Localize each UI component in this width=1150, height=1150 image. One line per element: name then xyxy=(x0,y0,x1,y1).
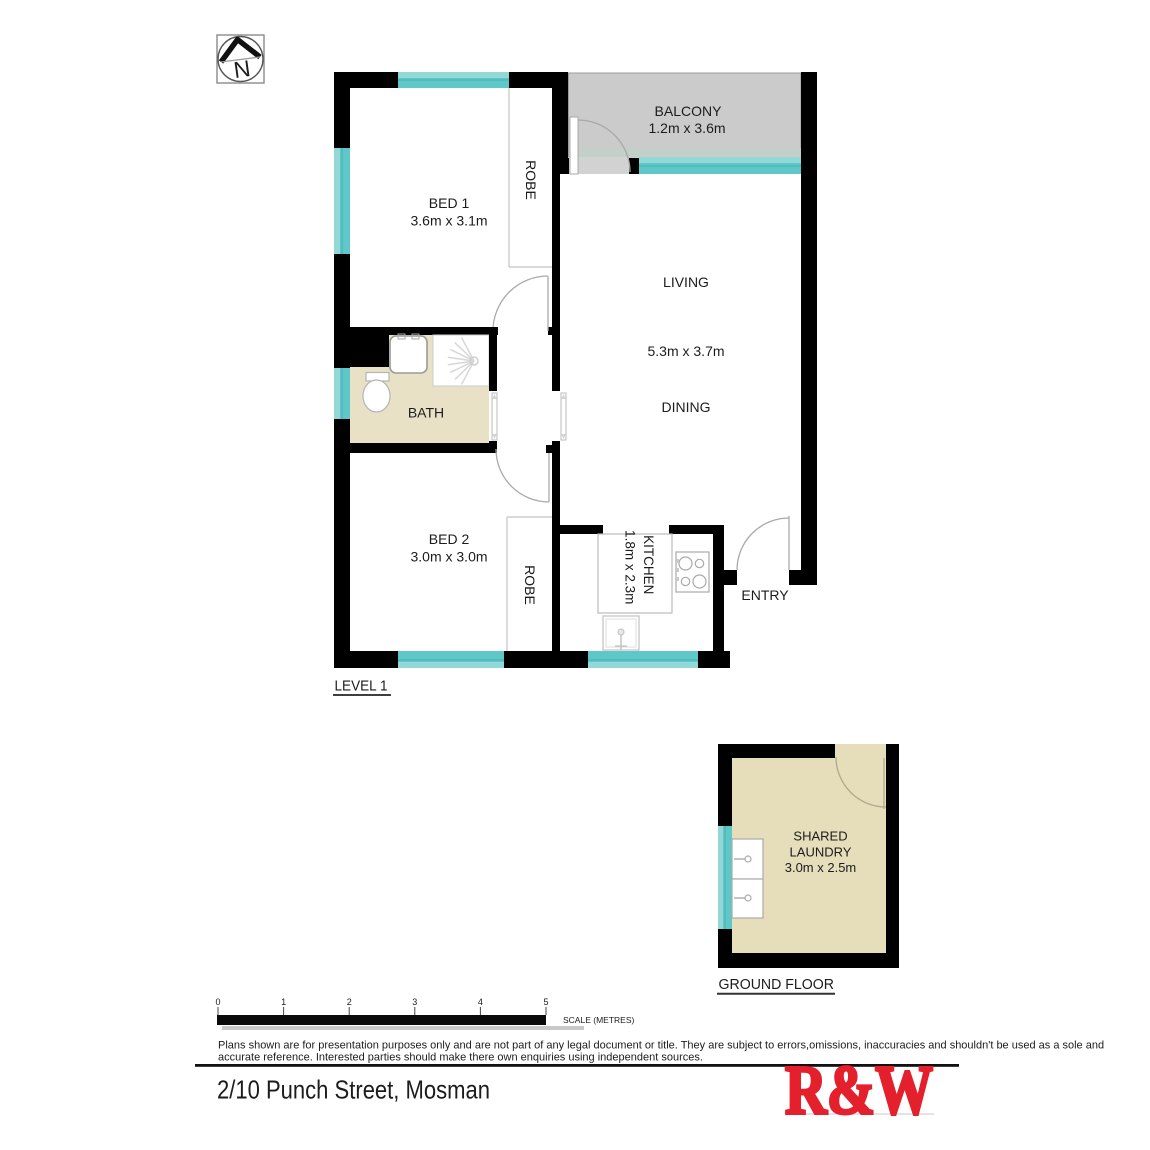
svg-text:BATH: BATH xyxy=(408,405,444,421)
svg-text:BALCONY: BALCONY xyxy=(655,103,723,119)
svg-text:SCALE (METRES): SCALE (METRES) xyxy=(563,1015,634,1025)
svg-text:1: 1 xyxy=(281,997,286,1007)
svg-text:DINING: DINING xyxy=(662,399,711,415)
svg-text:3.0m x 3.0m: 3.0m x 3.0m xyxy=(410,549,487,565)
svg-text:5.3m x 3.7m: 5.3m x 3.7m xyxy=(647,343,724,359)
svg-text:1.2m x 3.6m: 1.2m x 3.6m xyxy=(648,120,725,136)
svg-text:ENTRY: ENTRY xyxy=(741,587,789,603)
svg-text:ROBE: ROBE xyxy=(522,565,538,605)
svg-text:LAUNDRY: LAUNDRY xyxy=(790,844,852,859)
svg-text:N: N xyxy=(232,55,252,83)
svg-text:Plans shown are for presentati: Plans shown are for presentation purpose… xyxy=(218,1040,1104,1052)
svg-text:4: 4 xyxy=(478,997,483,1007)
svg-text:LIVING: LIVING xyxy=(663,274,709,290)
svg-text:R&W: R&W xyxy=(785,1053,933,1130)
svg-text:3: 3 xyxy=(412,997,417,1007)
svg-text:2/10 Punch Street, Mosman: 2/10 Punch Street, Mosman xyxy=(217,1074,490,1104)
svg-text:0: 0 xyxy=(215,997,220,1007)
svg-text:BED 1: BED 1 xyxy=(429,195,470,211)
svg-text:accurate reference. Interested: accurate reference. Interested parties s… xyxy=(218,1052,703,1064)
svg-text:GROUND FLOOR: GROUND FLOOR xyxy=(719,976,835,993)
svg-text:5: 5 xyxy=(543,997,548,1007)
svg-text:SHARED: SHARED xyxy=(793,829,847,844)
svg-text:KITCHEN: KITCHEN xyxy=(641,535,656,594)
svg-text:ROBE: ROBE xyxy=(523,160,539,200)
svg-text:LEVEL 1: LEVEL 1 xyxy=(335,678,388,695)
svg-text:3.6m x 3.1m: 3.6m x 3.1m xyxy=(410,213,487,229)
svg-text:2: 2 xyxy=(347,997,352,1007)
svg-text:BED 2: BED 2 xyxy=(429,531,470,547)
svg-text:3.0m x 2.5m: 3.0m x 2.5m xyxy=(785,860,857,875)
svg-text:1.8m x 2.3m: 1.8m x 2.3m xyxy=(622,530,637,604)
